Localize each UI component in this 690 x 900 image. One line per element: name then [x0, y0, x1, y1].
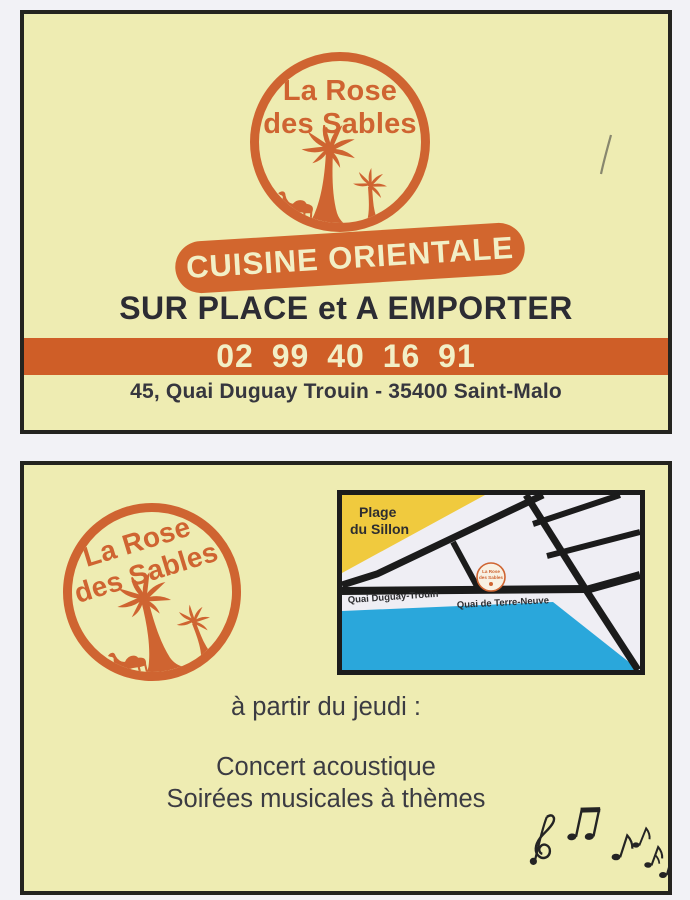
address-line: 45, Quai Duguay Trouin - 35400 Saint-Mal…: [24, 380, 668, 404]
service-line: SUR PLACE et A EMPORTER: [24, 290, 668, 327]
map-marker: La Rose des Sables: [477, 563, 505, 591]
palm-trees-camel-icon: [267, 125, 415, 225]
eighth-note-icon: [643, 844, 666, 872]
beach-label-line2: du Sillon: [350, 521, 409, 537]
marker-label-line2: des Sables: [479, 575, 503, 580]
scan-scratch-mark: [596, 132, 618, 178]
announcement-text: à partir du jeudi :: [24, 693, 628, 722]
music-notes-icon: [520, 795, 672, 887]
cuisine-badge: CUISINE ORIENTALE: [174, 221, 527, 294]
cuisine-badge-label: CUISINE ORIENTALE: [185, 230, 515, 286]
business-card-back: La Rose des Sables: [20, 461, 672, 895]
phone-banner: 02 99 40 16 91: [24, 338, 668, 375]
location-map: Plage du Sillon Quai Duguay-Trouin Quai …: [337, 490, 645, 675]
camel-icon: [107, 644, 149, 683]
eighth-note-icon: [631, 826, 653, 853]
marker-label-line1: La Rose: [482, 569, 500, 574]
beamed-notes-icon: [566, 804, 601, 846]
beach-label-line1: Plage: [359, 504, 397, 520]
treble-clef-icon: [529, 813, 556, 867]
phone-number: 02 99 40 16 91: [216, 338, 476, 375]
eighth-note-icon: [657, 853, 672, 882]
business-card-front: La Rose des Sables: [20, 10, 672, 434]
event-line-1: Concert acoustique: [24, 753, 628, 782]
eighth-note-icon: [610, 833, 636, 866]
restaurant-logo-tilted: La Rose des Sables: [41, 481, 263, 703]
restaurant-logo: La Rose des Sables: [250, 52, 430, 232]
camel-icon: [278, 191, 313, 221]
logo-line1: La Rose: [263, 75, 417, 108]
